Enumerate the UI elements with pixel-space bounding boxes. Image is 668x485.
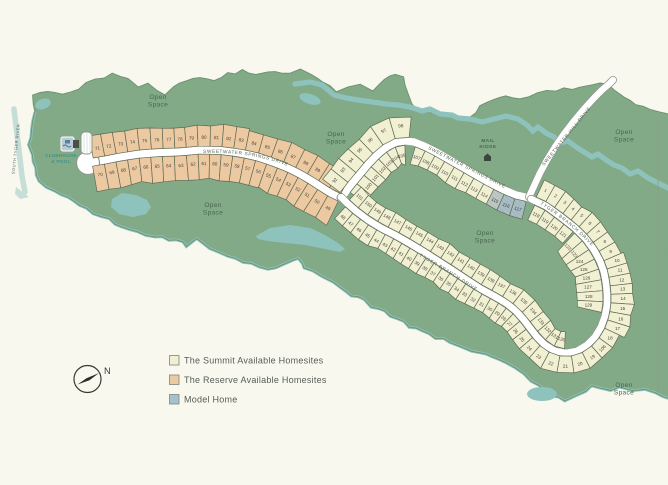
svg-text:Open: Open	[327, 131, 344, 138]
svg-text:Model Home: Model Home	[184, 395, 238, 405]
svg-text:10: 10	[614, 258, 620, 263]
svg-text:81: 81	[214, 135, 220, 140]
svg-text:62: 62	[190, 162, 196, 167]
svg-text:8: 8	[604, 239, 607, 244]
svg-text:63: 63	[178, 163, 184, 168]
svg-text:Open: Open	[476, 230, 493, 237]
svg-text:Space: Space	[148, 102, 168, 109]
svg-text:125: 125	[580, 267, 588, 272]
svg-text:N: N	[104, 366, 111, 376]
svg-text:126: 126	[583, 275, 591, 280]
svg-text:KIOSK: KIOSK	[479, 144, 496, 150]
svg-text:9: 9	[609, 249, 612, 254]
svg-text:17: 17	[615, 326, 621, 331]
svg-text:& POOL: & POOL	[51, 159, 70, 164]
svg-text:13: 13	[620, 287, 626, 292]
svg-text:65: 65	[154, 164, 160, 169]
svg-text:59: 59	[223, 162, 229, 168]
svg-text:78: 78	[177, 136, 183, 141]
svg-text:Space: Space	[614, 137, 634, 144]
svg-text:76: 76	[154, 137, 160, 142]
svg-text:Space: Space	[475, 238, 495, 245]
svg-text:128: 128	[585, 294, 593, 299]
svg-text:127: 127	[584, 284, 592, 289]
svg-text:The Summit Available Homesites: The Summit Available Homesites	[184, 356, 324, 366]
svg-text:18: 18	[608, 335, 614, 340]
svg-text:129: 129	[585, 303, 593, 308]
svg-text:The Reserve Available Homesite: The Reserve Available Homesites	[184, 375, 327, 385]
svg-text:12: 12	[619, 277, 625, 282]
svg-text:14: 14	[621, 296, 627, 301]
svg-text:124: 124	[576, 259, 584, 264]
svg-text:Space: Space	[203, 210, 223, 217]
svg-text:75: 75	[142, 138, 148, 143]
svg-text:Open: Open	[615, 129, 632, 136]
svg-text:Open: Open	[615, 382, 632, 389]
svg-text:60: 60	[212, 161, 218, 166]
svg-text:15: 15	[620, 306, 626, 311]
svg-text:Open: Open	[149, 94, 166, 101]
svg-text:64: 64	[166, 163, 172, 168]
svg-text:Space: Space	[326, 139, 346, 146]
svg-text:11: 11	[618, 268, 623, 273]
svg-text:Space: Space	[614, 390, 634, 397]
svg-text:21: 21	[563, 364, 569, 369]
svg-text:CLUBHOUSE: CLUBHOUSE	[45, 153, 77, 158]
svg-text:82: 82	[226, 136, 232, 142]
svg-text:61: 61	[201, 161, 207, 166]
svg-text:79: 79	[189, 135, 195, 140]
svg-text:16: 16	[618, 316, 624, 321]
svg-text:80: 80	[201, 135, 207, 140]
svg-text:Open: Open	[204, 202, 221, 209]
svg-text:MAIL: MAIL	[481, 138, 494, 144]
svg-text:66: 66	[143, 164, 149, 170]
svg-text:77: 77	[166, 137, 172, 142]
svg-text:98: 98	[398, 123, 404, 129]
